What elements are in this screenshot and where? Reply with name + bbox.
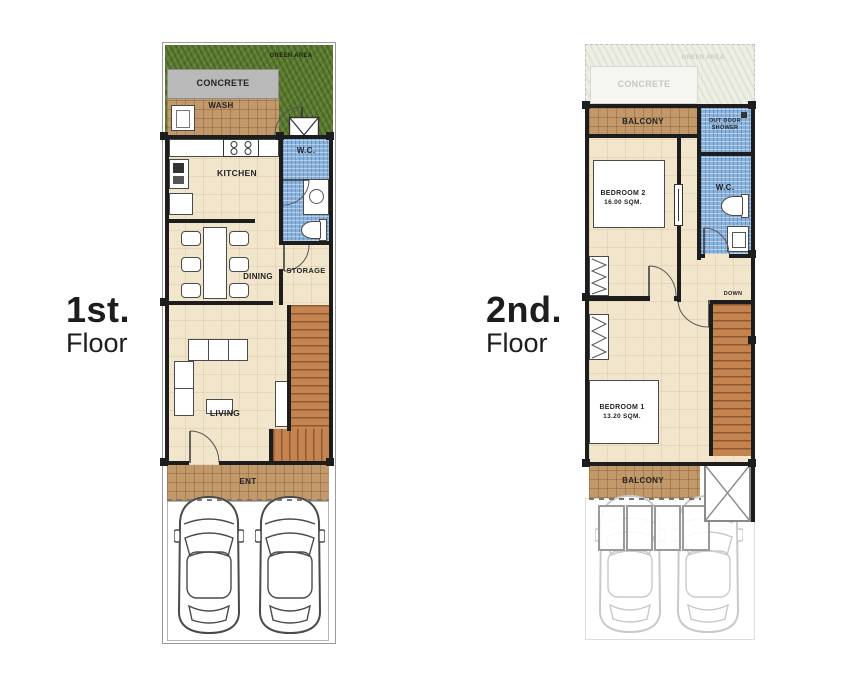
floor1-title-block: 1st. Floor (66, 292, 130, 359)
fridge (169, 193, 193, 215)
dining-label: DINING (243, 273, 273, 281)
washing-machine (171, 105, 195, 131)
dining-chair (229, 283, 249, 298)
wc2-door-arc (703, 228, 729, 254)
down-label: DOWN (724, 292, 743, 298)
dining-chair (181, 231, 201, 246)
wc-window-icon (289, 117, 319, 137)
entrance-door-arc (189, 431, 219, 463)
shower-head-icon (741, 112, 747, 118)
canopy-panel (626, 505, 653, 551)
living-label: LIVING (210, 409, 240, 418)
wc2-label: W.C. (716, 184, 735, 192)
dining-chair (181, 283, 201, 298)
ent-label: ENT (240, 478, 257, 486)
floor2-subtitle: Floor (486, 328, 562, 359)
wc2-sink (727, 226, 749, 252)
bedroom2-label: BEDROOM 2 (600, 190, 645, 197)
floor1-plan: GREEN AREA CONCRETE WASH W.C. (162, 42, 336, 644)
green-area-label: GREEN AREA (270, 53, 313, 59)
floor1-title: 1st. (66, 292, 130, 328)
green-area-ghost-label: GREEN AREA (682, 55, 725, 61)
sliding-door (674, 184, 683, 226)
concrete-ghost-label: CONCRETE (618, 80, 671, 89)
storage-label: STORAGE (286, 267, 325, 275)
bed-bedroom1 (589, 380, 659, 444)
dining-table (203, 227, 227, 299)
void-open-below (704, 464, 751, 522)
concrete-label: CONCRETE (197, 79, 250, 88)
canopy-panel (598, 505, 625, 551)
outdoor-shower-label-2: SHOWER (712, 126, 739, 132)
wardrobe-bedroom2 (589, 256, 609, 296)
stairs-lower-flight (273, 429, 329, 461)
wc1-label: W.C. (297, 147, 316, 155)
dining-chair (229, 257, 249, 272)
balcony-bottom-label: BALCONY (622, 477, 664, 485)
floor-plan-image: 1st. Floor 2nd. Floor GREEN AREA CONCRET… (0, 0, 846, 680)
bedroom2-area-label: 16.00 SQM. (604, 200, 642, 207)
wash-label: WASH (208, 102, 233, 110)
dining-chair (229, 231, 249, 246)
dining-chair (181, 257, 201, 272)
car-2 (255, 494, 325, 636)
floor2-plan: GREEN AREA CONCRETE BALCONY OUT DOOR SHO… (585, 42, 757, 642)
outdoor-shower-label-1: OUT DOOR (709, 119, 741, 125)
canopy-panel (654, 505, 681, 551)
wc2-toilet (721, 196, 743, 216)
sofa-side (174, 361, 194, 416)
kitchen-sink (169, 159, 189, 189)
balcony-top-label: BALCONY (622, 118, 664, 126)
sofa (188, 339, 248, 361)
stairs-up (291, 305, 329, 429)
wc1-toilet (301, 221, 321, 239)
car-1 (174, 494, 244, 636)
bedroom1-door-arc (678, 300, 710, 328)
stairs-down (713, 304, 751, 456)
floor2-title-block: 2nd. Floor (486, 292, 562, 359)
stove-icon (223, 139, 259, 157)
bedroom1-area-label: 13.20 SQM. (603, 414, 641, 421)
wc1-door-arc (283, 179, 309, 205)
floor2-title: 2nd. (486, 292, 562, 328)
wardrobe-bedroom1 (589, 314, 609, 360)
floor1-subtitle: Floor (66, 328, 130, 359)
bedroom2-door-arc (648, 266, 676, 296)
bedroom1-label: BEDROOM 1 (599, 404, 644, 411)
kitchen-label: KITCHEN (217, 169, 257, 178)
